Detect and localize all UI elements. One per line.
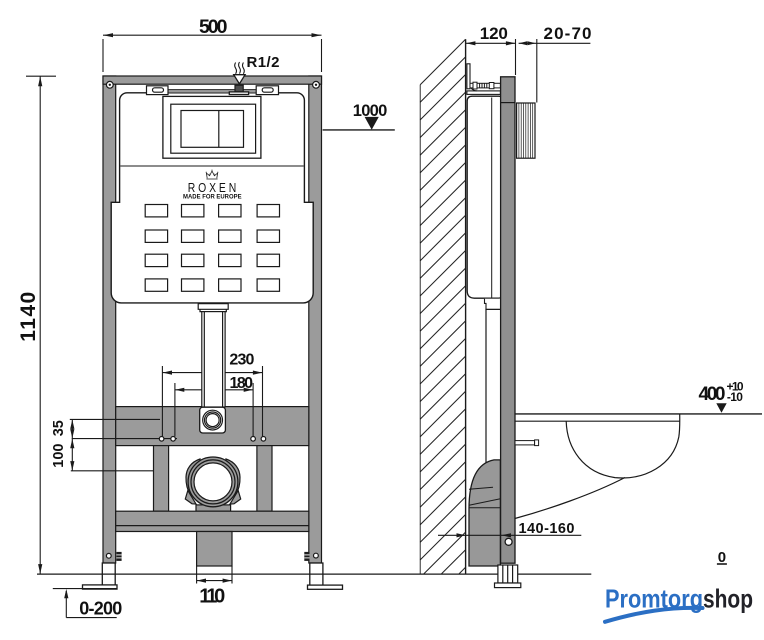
svg-text:120: 120 — [480, 24, 508, 43]
svg-text:0-200: 0-200 — [79, 599, 122, 619]
svg-text:35: 35 — [51, 420, 67, 436]
svg-text:100: 100 — [51, 443, 67, 467]
svg-text:20-70: 20-70 — [544, 24, 592, 43]
svg-text:R1/2: R1/2 — [247, 54, 280, 71]
svg-text:shop: shop — [703, 583, 753, 613]
svg-text:400: 400 — [699, 384, 726, 405]
svg-text:1000: 1000 — [353, 102, 388, 120]
svg-text:-10: -10 — [727, 390, 743, 404]
svg-text:MADE FOR EUROPE: MADE FOR EUROPE — [183, 194, 242, 201]
svg-text:1140: 1140 — [17, 292, 40, 342]
svg-text:230: 230 — [229, 351, 254, 368]
svg-text:180: 180 — [230, 375, 254, 392]
svg-text:110: 110 — [199, 586, 225, 608]
svg-text:500: 500 — [199, 16, 228, 38]
svg-text:140-160: 140-160 — [519, 521, 575, 537]
